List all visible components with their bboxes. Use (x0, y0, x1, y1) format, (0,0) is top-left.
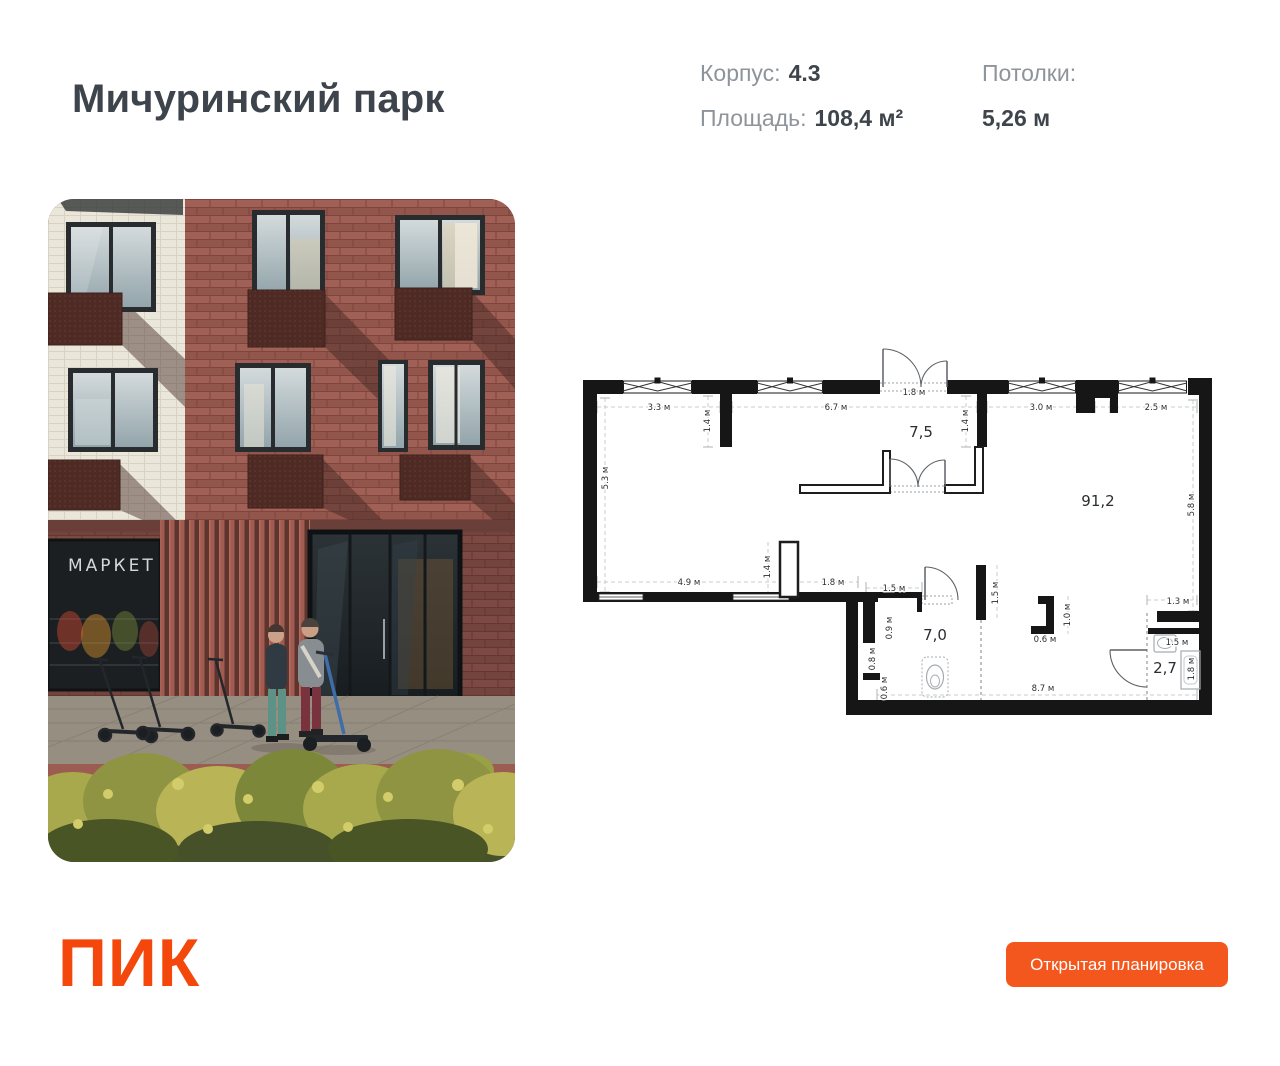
area-label: Площадь: (700, 105, 807, 132)
dimension-label: 0.8 м (868, 648, 878, 671)
block-label: Корпус: (700, 60, 781, 87)
room-area-label: 2,7 (1153, 659, 1177, 677)
dimension-label: 2.5 м (1145, 403, 1168, 413)
dimension-label: 3.3 м (648, 403, 671, 413)
dimension-label: 0.6 м (880, 677, 890, 700)
dimension-label: 5.8 м (1187, 494, 1197, 517)
area-value: 108,4 м² (815, 105, 904, 132)
dimension-label: 1.5 м (1166, 638, 1189, 648)
entrance-door (310, 532, 460, 703)
dimension-labels: 3.3 м6.7 м1.8 м3.0 м2.5 м5.3 м1.4 м1.4 м… (601, 388, 1197, 699)
dimension-label: 1.4 м (703, 410, 713, 433)
dimension-label: 1.4 м (763, 556, 773, 579)
dimension-label: 6.7 м (825, 403, 848, 413)
dimension-label: 1.4 м (961, 410, 971, 433)
spec-ceilings-label: Потолки: (982, 60, 1076, 87)
dimension-label: 1.5 м (883, 584, 906, 594)
dimension-label: 1.5 м (991, 582, 1001, 605)
floorplan-walls (583, 378, 1212, 715)
building-photo: МАРКЕТ (48, 199, 515, 862)
dimension-label: 8.7 м (1032, 684, 1055, 694)
spec-ceilings-value: 5,26 м (982, 105, 1050, 132)
open-plan-button[interactable]: Открытая планировка (1006, 942, 1228, 987)
dimension-label: 1.3 м (1167, 597, 1190, 607)
dimension-label: 1.8 м (822, 578, 845, 588)
room-area-label: 7,0 (923, 626, 947, 644)
light-partitions (780, 447, 983, 597)
dimension-label: 5.3 м (601, 467, 611, 490)
dimension-label: 1.8 м (1187, 658, 1197, 681)
dimension-label: 3.0 м (1030, 403, 1053, 413)
ceilings-label: Потолки: (982, 60, 1076, 87)
dimension-label: 4.9 м (678, 578, 701, 588)
spec-area: Площадь: 108,4 м² (700, 105, 903, 132)
dimension-label: 0.9 м (885, 617, 895, 640)
ceilings-value: 5,26 м (982, 105, 1050, 132)
dimension-label: 0.6 м (1034, 635, 1057, 645)
dimension-ticks (597, 396, 1198, 701)
room-area-label: 91,2 (1081, 492, 1114, 510)
building-photo-art: МАРКЕТ (48, 199, 515, 862)
block-value: 4.3 (789, 60, 821, 87)
room-area-label: 7,5 (909, 423, 933, 441)
dimension-label: 1.0 м (1063, 604, 1073, 627)
spec-block: Корпус: 4.3 (700, 60, 821, 87)
pik-logo[interactable]: ПИК (58, 924, 200, 1002)
dimension-lines (597, 396, 1197, 695)
floorplan: 3.3 м6.7 м1.8 м3.0 м2.5 м5.3 м1.4 м1.4 м… (575, 345, 1225, 725)
market-sign: МАРКЕТ (68, 556, 156, 576)
bushes (48, 749, 515, 862)
page-title: Мичуринский парк (72, 77, 445, 122)
dimension-label: 1.8 м (903, 388, 926, 398)
slatted-wall (160, 520, 310, 696)
